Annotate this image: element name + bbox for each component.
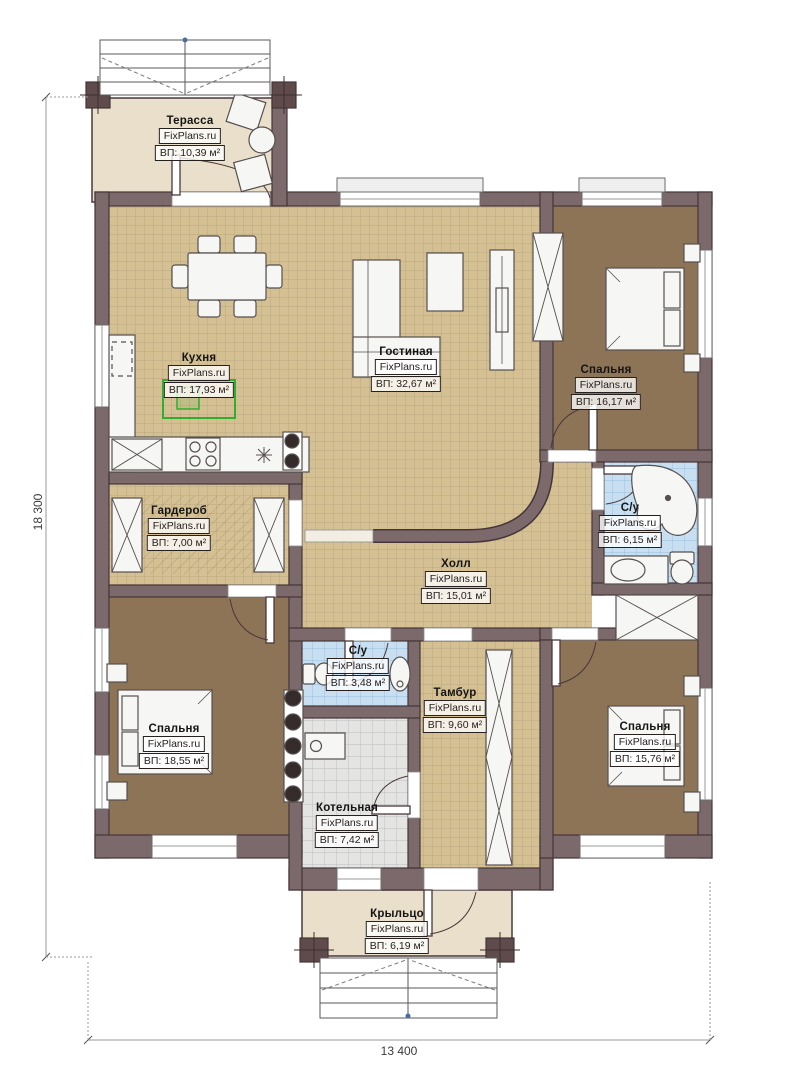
nightstand-tr-1 [684, 244, 700, 262]
room-label-boiler: Котельная FixPlans.ru ВП: 7,42 м² [315, 802, 379, 848]
wall-hall-bottom [289, 628, 540, 641]
room-name: С/у [621, 502, 640, 514]
room-label-living: Гостиная FixPlans.ru ВП: 32,67 м² [371, 346, 441, 392]
wardrobe-bedroom-tr [533, 233, 563, 341]
room-label-bath-small: С/у FixPlans.ru ВП: 3,48 м² [326, 645, 390, 691]
opening-bedroom-tr [548, 450, 596, 462]
room-label-hall: Холл FixPlans.ru ВП: 15,01 м² [421, 558, 491, 604]
room-watermark: FixPlans.ru [425, 571, 488, 587]
cabinet-bedroom-br [616, 595, 698, 640]
room-label-kitchen: Кухня FixPlans.ru ВП: 17,93 м² [164, 352, 234, 398]
opening-wardrobe [289, 500, 302, 546]
room-name: Котельная [316, 802, 378, 814]
heating-pipes [284, 690, 303, 802]
room-area: ВП: 16,17 м² [571, 394, 641, 410]
room-area: ВП: 6,19 м² [365, 938, 429, 954]
room-label-tambur: Тамбур FixPlans.ru ВП: 9,60 м² [423, 687, 487, 733]
nightstand-br-2 [684, 792, 700, 812]
room-area: ВП: 10,39 м² [155, 145, 225, 161]
room-watermark: FixPlans.ru [599, 515, 662, 531]
boiler-unit [305, 733, 345, 759]
kitchen-sink [256, 447, 272, 463]
nightstand-bl-1 [107, 664, 127, 682]
wall-kitchen-bottom [109, 472, 302, 484]
room-watermark: FixPlans.ru [575, 377, 638, 393]
floor-plan-canvas: Терасса FixPlans.ru ВП: 10,39 м² Кухня F… [0, 0, 792, 1080]
room-watermark: FixPlans.ru [143, 736, 206, 752]
room-name: Холл [441, 558, 471, 570]
kitchen-hob-knobs [283, 432, 302, 470]
opening-bedroom-bl [228, 585, 276, 597]
wall-bottom-center [289, 868, 553, 890]
room-label-bedroom-br: Спальня FixPlans.ru ВП: 15,76 м² [610, 721, 680, 767]
opening-terrace-kitchen [172, 192, 270, 206]
dining-table [188, 253, 266, 300]
room-label-bedroom-tr: Спальня FixPlans.ru ВП: 16,17 м² [571, 364, 641, 410]
room-area: ВП: 9,60 м² [423, 717, 487, 733]
room-watermark: FixPlans.ru [159, 128, 222, 144]
room-label-porch: Крыльцо FixPlans.ru ВП: 6,19 м² [365, 908, 429, 954]
room-name: Спальня [148, 723, 199, 735]
room-watermark: FixPlans.ru [366, 921, 429, 937]
wardrobe-right-cabinet [254, 498, 284, 572]
bathtub-drain [666, 496, 671, 501]
wall-terrace-right [272, 95, 287, 206]
toilet-tr [670, 552, 694, 584]
room-area: ВП: 17,93 м² [164, 382, 234, 398]
room-watermark: FixPlans.ru [614, 734, 677, 750]
room-area: ВП: 7,00 м² [147, 535, 211, 551]
room-name: Терасса [166, 115, 213, 127]
stove [186, 438, 220, 470]
room-label-bath-tr: С/у FixPlans.ru ВП: 6,15 м² [598, 502, 662, 548]
opening-bedroom-br [552, 628, 598, 640]
room-watermark: FixPlans.ru [168, 365, 231, 381]
room-name: Крыльцо [370, 908, 424, 920]
room-label-wardrobe: Гардероб FixPlans.ru ВП: 7,00 м² [147, 505, 211, 551]
dimension-height: 18 300 [31, 482, 45, 542]
room-watermark: FixPlans.ru [148, 518, 211, 534]
window-sill-living [337, 178, 483, 192]
kitchen-corner-cabinet [112, 439, 162, 470]
window-sill-bedroom-tr [579, 178, 665, 192]
opening-entrance [424, 868, 478, 890]
room-name: Спальня [580, 364, 631, 376]
room-name: Тамбур [434, 687, 477, 699]
tv-stand [490, 250, 514, 370]
passage-kitchen-hall [305, 530, 373, 542]
coffee-table [427, 253, 463, 311]
room-watermark: FixPlans.ru [375, 359, 438, 375]
room-name: Гостиная [379, 346, 433, 358]
opening-tambur [424, 628, 472, 641]
nightstand-tr-2 [684, 354, 700, 372]
room-area: ВП: 15,01 м² [421, 588, 491, 604]
room-label-bedroom-bl: Спальня FixPlans.ru ВП: 18,55 м² [139, 723, 209, 769]
room-area: ВП: 15,76 м² [610, 751, 680, 767]
room-watermark: FixPlans.ru [316, 815, 379, 831]
room-area: ВП: 6,15 м² [598, 532, 662, 548]
floor-tambur [420, 641, 540, 868]
wardrobe-left-cabinet [112, 498, 142, 572]
nightstand-bl-2 [107, 782, 127, 800]
room-watermark: FixPlans.ru [424, 700, 487, 716]
sink-small [390, 657, 410, 691]
room-area: ВП: 3,48 м² [326, 675, 390, 691]
opening-bath-small [345, 628, 391, 641]
wall-stub-right [540, 858, 553, 890]
wall-bath-bottom [592, 583, 712, 595]
room-area: ВП: 7,42 м² [315, 832, 379, 848]
stairs-porch [320, 958, 497, 1019]
stairs-terrace [100, 38, 270, 96]
wall-tambur-right [540, 640, 553, 868]
nightstand-br-1 [684, 676, 700, 696]
dimension-width: 13 400 [359, 1044, 439, 1058]
room-area: ВП: 32,67 м² [371, 376, 441, 392]
room-watermark: FixPlans.ru [327, 658, 390, 674]
terrace-table [249, 127, 275, 153]
room-area: ВП: 18,55 м² [139, 753, 209, 769]
room-name: Кухня [182, 352, 217, 364]
room-name: Гардероб [151, 505, 207, 517]
room-label-terrace: Терасса FixPlans.ru ВП: 10,39 м² [155, 115, 225, 161]
room-name: Спальня [619, 721, 670, 733]
bed-bedroom-tr [606, 268, 684, 350]
room-name: С/у [349, 645, 368, 657]
wall-bath-small-bottom [302, 706, 420, 718]
tambur-cabinet [486, 650, 512, 865]
